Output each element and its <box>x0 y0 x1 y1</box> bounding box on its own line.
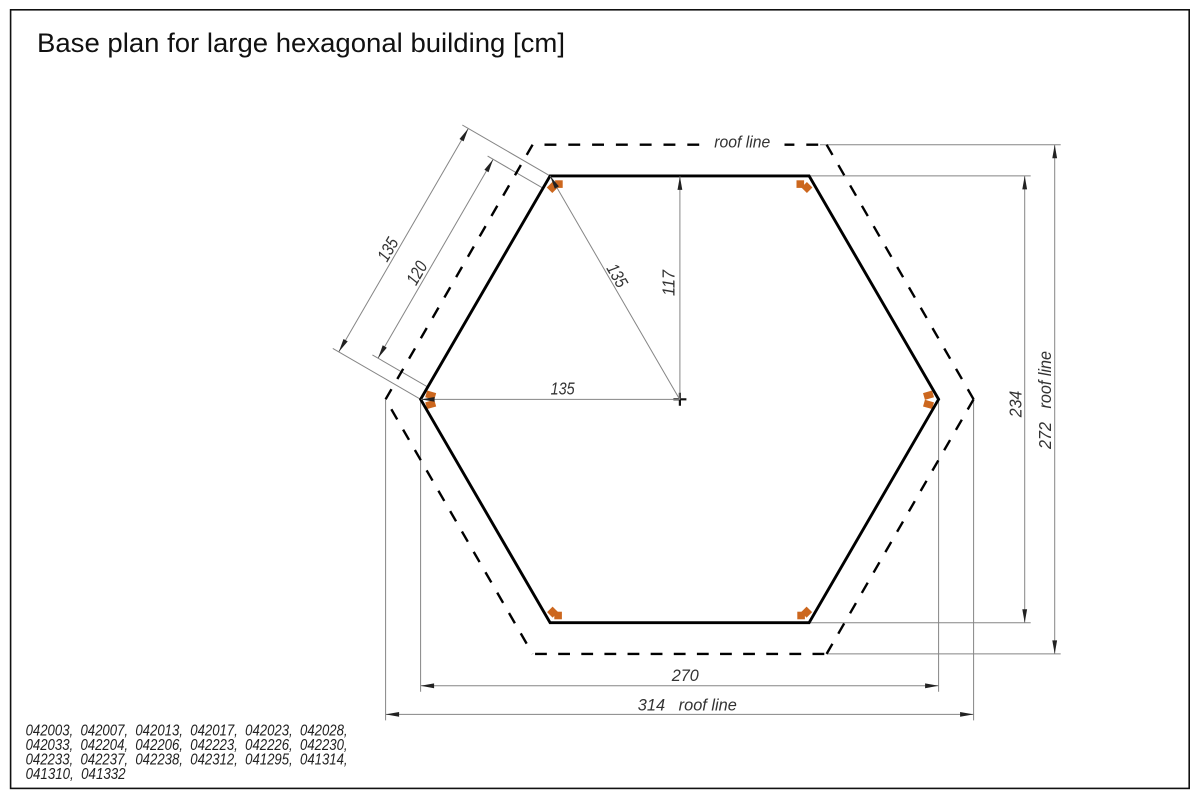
svg-text:314 roof line: 314 roof line <box>638 696 737 714</box>
svg-text:roof line: roof line <box>714 133 770 152</box>
svg-text:234: 234 <box>1006 391 1026 418</box>
svg-text:135: 135 <box>551 379 575 399</box>
svg-text:135: 135 <box>603 260 632 291</box>
svg-text:120: 120 <box>402 258 431 289</box>
svg-text:117: 117 <box>659 269 679 296</box>
svg-text:135: 135 <box>373 234 402 265</box>
svg-text:Base plan for large hexagonal: Base plan for large hexagonal building [… <box>37 28 565 58</box>
svg-text:270: 270 <box>671 667 700 685</box>
svg-text:272 roof line: 272 roof line <box>1035 351 1055 450</box>
svg-text:041310, 041332: 041310, 041332 <box>26 766 126 783</box>
